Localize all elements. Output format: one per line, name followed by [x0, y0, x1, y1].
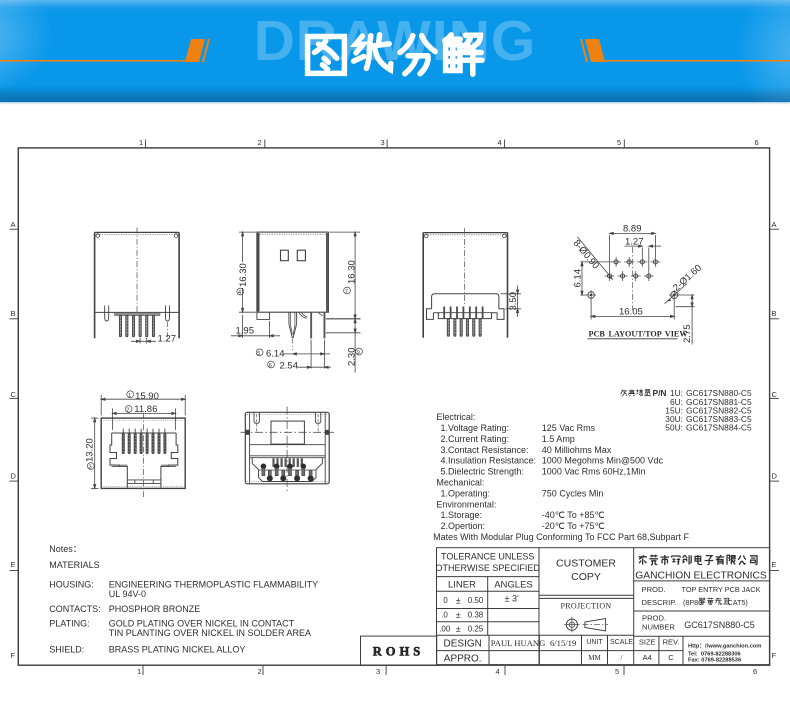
svg-text:8-Ø0.90: 8-Ø0.90: [571, 238, 601, 271]
svg-text:CAT5): CAT5): [728, 598, 748, 607]
svg-text:1: 1: [128, 393, 131, 399]
svg-text:UNIT: UNIT: [586, 639, 603, 646]
svg-text:9: 9: [357, 350, 360, 356]
svg-text:50U:: 50U:: [665, 422, 683, 432]
svg-text:-40℃ To +85℃: -40℃ To +85℃: [542, 510, 605, 520]
svg-text:2.54: 2.54: [280, 360, 299, 371]
svg-text:13.20: 13.20: [84, 438, 95, 462]
svg-text:2-Ø1.60: 2-Ø1.60: [671, 263, 704, 294]
svg-text:D: D: [772, 472, 778, 481]
svg-text:6.14: 6.14: [266, 349, 285, 360]
svg-text:PLATING:: PLATING:: [49, 619, 89, 629]
svg-text:16.30: 16.30: [346, 260, 357, 284]
svg-text:0.50: 0.50: [468, 596, 484, 605]
svg-text:1.Storage:: 1.Storage:: [441, 510, 483, 520]
svg-text:SCALE: SCALE: [610, 639, 633, 646]
svg-text:3: 3: [381, 138, 385, 147]
svg-text:Mechanical:: Mechanical:: [436, 478, 484, 488]
svg-text:A: A: [772, 220, 777, 229]
svg-text:Mates With Modular Plug Confor: Mates With Modular Plug Conforming To FC…: [433, 532, 689, 542]
svg-text:5: 5: [615, 667, 619, 676]
svg-text:±: ±: [456, 596, 461, 606]
svg-text:PAUL HUANG: PAUL HUANG: [491, 638, 546, 648]
svg-text:PHOSPHOR BRONZE: PHOSPHOR BRONZE: [109, 604, 201, 614]
svg-text:C: C: [772, 390, 778, 399]
svg-text:BRASS PLATING NICKEL ALLOY: BRASS PLATING NICKEL ALLOY: [109, 645, 246, 655]
svg-text:DESIGN: DESIGN: [444, 639, 482, 650]
svg-text:/: /: [621, 654, 623, 662]
svg-text:±: ±: [456, 610, 461, 620]
svg-text:SIZE: SIZE: [639, 638, 656, 647]
svg-text:SHIELD:: SHIELD:: [49, 645, 84, 655]
svg-text:16.05: 16.05: [619, 307, 643, 318]
svg-text:15.90: 15.90: [135, 391, 159, 402]
svg-text:2: 2: [258, 138, 262, 147]
svg-text:1.27: 1.27: [158, 334, 177, 345]
svg-text:11.86: 11.86: [134, 404, 157, 415]
svg-text:±: ±: [456, 624, 461, 634]
svg-text:Fax: 0769-82288536: Fax: 0769-82288536: [688, 658, 741, 664]
svg-text:1: 1: [137, 667, 141, 676]
svg-text:TOLERANCE UNLESS: TOLERANCE UNLESS: [441, 552, 534, 562]
svg-text:3: 3: [89, 465, 92, 471]
svg-text:PROD.: PROD.: [642, 585, 666, 594]
svg-text:6: 6: [269, 363, 272, 369]
svg-text:3: 3: [376, 667, 380, 676]
svg-text:± 3ʻ: ± 3ʻ: [505, 594, 519, 604]
svg-text:E: E: [11, 560, 16, 569]
svg-text:TOP ENTRY PCB JACK: TOP ENTRY PCB JACK: [682, 585, 761, 594]
svg-text:DESCRIP.: DESCRIP.: [642, 598, 677, 607]
svg-text:P/N: P/N: [653, 388, 667, 398]
svg-text:NUMBER: NUMBER: [642, 623, 675, 632]
svg-text:4.Insulation Resistance:: 4.Insulation Resistance:: [441, 456, 537, 466]
svg-text:1.Operating:: 1.Operating:: [441, 488, 491, 498]
svg-text:5.Dielectric Strength:: 5.Dielectric Strength:: [441, 467, 525, 477]
svg-text:PROD.: PROD.: [642, 614, 666, 623]
svg-text:2: 2: [258, 667, 262, 676]
svg-text:D: D: [11, 472, 17, 481]
svg-text:750 Cycles Min: 750 Cycles Min: [542, 488, 604, 498]
svg-text:C: C: [668, 653, 674, 662]
svg-text:HOUSING:: HOUSING:: [49, 580, 94, 590]
svg-text:0.38: 0.38: [468, 611, 484, 620]
svg-text:7: 7: [345, 289, 348, 295]
svg-text:4: 4: [238, 290, 241, 296]
svg-text:.00: .00: [439, 625, 451, 634]
svg-text:CONTACTS:: CONTACTS:: [49, 604, 100, 614]
svg-text:16.30: 16.30: [238, 263, 249, 287]
svg-text:LINER: LINER: [448, 580, 476, 591]
svg-text:6: 6: [755, 138, 759, 147]
svg-text:COPY: COPY: [571, 571, 601, 583]
svg-text:6.14: 6.14: [572, 269, 583, 288]
svg-text:OTHERWISE SPECIFIED: OTHERWISE SPECIFIED: [436, 563, 541, 573]
svg-text:5: 5: [617, 138, 621, 147]
svg-text:B: B: [772, 309, 777, 318]
svg-text:40 Milliohms Max: 40 Milliohms Max: [542, 445, 612, 455]
svg-text:CUSTOMER: CUSTOMER: [556, 558, 616, 570]
svg-text:APPRO.: APPRO.: [444, 654, 482, 665]
svg-text:F: F: [772, 651, 777, 660]
svg-text:1000 Megohms Min@500 Vdc: 1000 Megohms Min@500 Vdc: [542, 456, 664, 466]
svg-text:F: F: [11, 651, 16, 660]
svg-text:1000 Vac Rms 60Hz,1Min: 1000 Vac Rms 60Hz,1Min: [542, 467, 646, 477]
svg-text:0: 0: [443, 596, 448, 605]
svg-text:UL 94V-0: UL 94V-0: [109, 589, 146, 599]
svg-text:1.5 Amp: 1.5 Amp: [542, 434, 575, 444]
svg-text:0.25: 0.25: [468, 625, 484, 634]
svg-text:1.Voltage Rating:: 1.Voltage Rating:: [441, 423, 510, 433]
svg-text:8.89: 8.89: [623, 224, 642, 235]
svg-text:Http：//www.ganchion.com: Http：//www.ganchion.com: [688, 644, 761, 650]
svg-text:Notes：: Notes：: [49, 544, 82, 554]
svg-text:C: C: [11, 390, 17, 399]
svg-text:Environmental:: Environmental:: [436, 499, 496, 509]
svg-text:A4: A4: [643, 653, 652, 662]
svg-text:-20℃ To +75℃: -20℃ To +75℃: [542, 521, 605, 531]
svg-text:3.50: 3.50: [508, 292, 519, 311]
svg-text:PROJECTION: PROJECTION: [560, 602, 611, 611]
svg-text:MATERIALS: MATERIALS: [49, 560, 99, 570]
svg-text:3.Contact Resistance:: 3.Contact Resistance:: [441, 445, 529, 455]
svg-text:MM: MM: [588, 654, 601, 662]
svg-text:B: B: [11, 309, 16, 318]
svg-text:GC617SN880-C5: GC617SN880-C5: [684, 620, 755, 630]
svg-text:2.Opertion:: 2.Opertion:: [441, 521, 486, 531]
svg-text:REV.: REV.: [663, 638, 680, 647]
svg-text:6: 6: [753, 667, 757, 676]
svg-text:2: 2: [126, 408, 129, 414]
svg-text:A: A: [11, 220, 16, 229]
svg-text:GANCHION ELECTRONICS: GANCHION ELECTRONICS: [635, 571, 767, 582]
svg-text:ENGINEERING THERMOPLASTIC FLAM: ENGINEERING THERMOPLASTIC FLAMMABILITY: [109, 580, 318, 590]
svg-text:1.95: 1.95: [236, 326, 255, 337]
svg-text:ANGLES: ANGLES: [494, 580, 533, 591]
svg-text:125 Vac Rms: 125 Vac Rms: [542, 423, 596, 433]
svg-text:6/15/19: 6/15/19: [550, 638, 576, 648]
svg-text:5: 5: [257, 351, 260, 357]
svg-text:1: 1: [139, 138, 143, 147]
svg-text:2.Current Rating:: 2.Current Rating:: [441, 434, 510, 444]
svg-text:4: 4: [498, 138, 502, 147]
svg-text:GC617SN884-C5: GC617SN884-C5: [686, 422, 752, 432]
svg-text:Electrical:: Electrical:: [436, 412, 475, 422]
svg-text:TIN PLANTING OVER NICKEL IN SO: TIN PLANTING OVER NICKEL IN SOLDER AREA: [109, 628, 311, 638]
svg-text:GOLD PLATING OVER NICKEL IN CO: GOLD PLATING OVER NICKEL IN CONTACT: [109, 619, 295, 629]
svg-text:E: E: [772, 560, 777, 569]
svg-text:.0: .0: [441, 611, 448, 620]
svg-text:4: 4: [496, 667, 500, 676]
svg-text:PCB LAYOUT/TOP VIEW: PCB LAYOUT/TOP VIEW: [589, 330, 689, 339]
svg-text:ROHS: ROHS: [373, 645, 424, 659]
svg-text:1.27: 1.27: [625, 236, 644, 247]
